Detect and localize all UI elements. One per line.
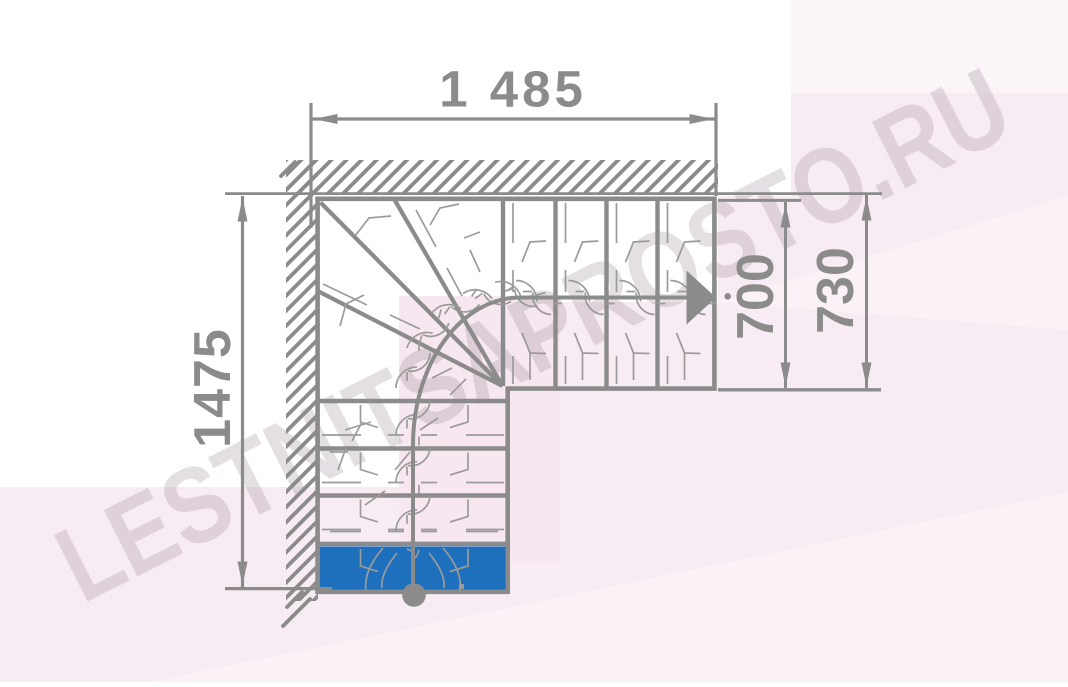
svg-text:700: 700 (727, 253, 785, 340)
svg-text:1475: 1475 (184, 328, 242, 448)
svg-text:730: 730 (807, 247, 865, 334)
svg-text:1 485: 1 485 (439, 61, 587, 118)
